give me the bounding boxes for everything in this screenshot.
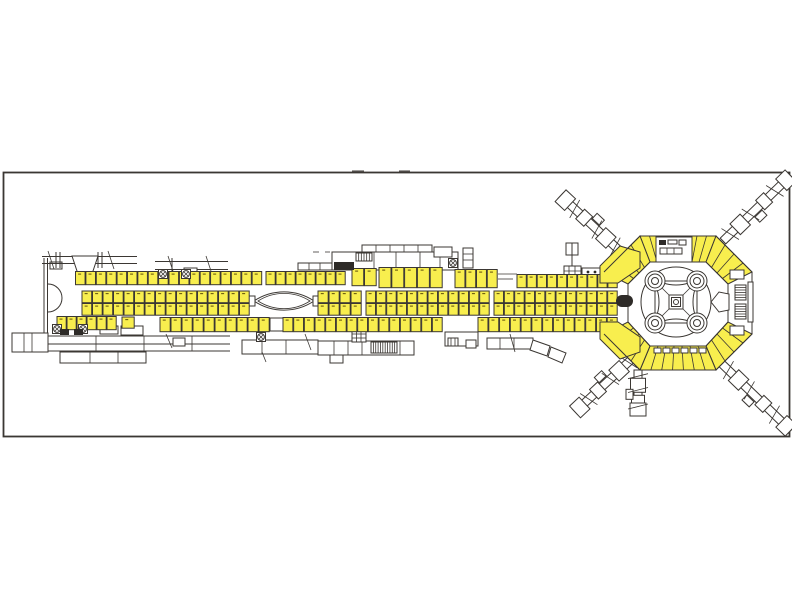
core-stair xyxy=(356,253,372,261)
mid-row-4-unit xyxy=(587,291,597,303)
mid-row-3-unit xyxy=(407,304,417,316)
mid-row-3-unit xyxy=(459,291,469,303)
bottom-row-1-unit xyxy=(97,317,106,330)
top-row-1-unit xyxy=(252,272,262,285)
mid-row-1-unit xyxy=(198,304,208,316)
top-row-1-unit xyxy=(96,272,106,285)
service-corridor-bottom-right xyxy=(445,332,566,363)
bottom-row-2-unit xyxy=(122,317,134,328)
top-row-6-unit xyxy=(557,275,566,288)
top-row-1-unit xyxy=(190,272,200,285)
top-row-2-unit xyxy=(266,272,275,285)
mid-row-2-unit xyxy=(329,291,339,303)
mid-row-3-unit xyxy=(449,291,459,303)
dark-block xyxy=(74,329,83,335)
top-row-1-unit xyxy=(169,272,179,285)
mid-row-1-unit xyxy=(187,304,197,316)
top-row-1-unit xyxy=(127,272,137,285)
mid-row-1-unit xyxy=(82,304,92,316)
mid-row-3-unit xyxy=(438,291,448,303)
core-service-complex xyxy=(298,245,458,270)
mid-row-1-unit xyxy=(114,291,124,303)
mid-row-4-unit xyxy=(546,291,556,303)
mid-row-2-unit xyxy=(318,291,328,303)
mid-row-3-unit xyxy=(376,291,386,303)
mid-row-4-unit xyxy=(535,291,545,303)
mid-row-4-unit xyxy=(525,291,535,303)
bottom-row-1-unit xyxy=(87,317,96,330)
mid-row-1-unit xyxy=(229,291,239,303)
mid-row-1-unit xyxy=(208,304,218,316)
mid-row-1-unit xyxy=(93,304,103,316)
mid-row-3-unit xyxy=(387,304,397,316)
hub-band-northeast xyxy=(706,236,752,284)
top-row-1-unit xyxy=(86,272,96,285)
mid-row-3-unit xyxy=(366,291,376,303)
mid-row-1-unit xyxy=(124,304,134,316)
mid-row-4-unit xyxy=(546,304,556,316)
crossed-circle-symbol xyxy=(449,259,458,268)
mid-row-4-unit xyxy=(608,304,618,316)
mid-row-3-unit xyxy=(397,304,407,316)
mid-row-1-unit xyxy=(103,291,113,303)
mid-row-1-unit xyxy=(177,291,187,303)
mid-row-2-unit xyxy=(340,304,350,316)
top-row-1-unit xyxy=(138,272,148,285)
top-row-6-unit xyxy=(588,275,597,288)
dark-block xyxy=(334,262,354,270)
hub-entry-shop-bottom xyxy=(600,322,640,359)
mid-row-4-unit xyxy=(577,304,587,316)
top-row-6-unit xyxy=(568,275,577,288)
mid-row-2-unit xyxy=(351,291,361,303)
mid-row-1-unit xyxy=(219,304,229,316)
top-row-1-unit xyxy=(211,272,221,285)
mid-row-1-unit xyxy=(82,291,92,303)
mid-row-4-unit xyxy=(597,304,607,316)
mid-row-3-unit xyxy=(428,304,438,316)
top-row-6-unit xyxy=(547,275,556,288)
mid-row-1-unit xyxy=(166,304,176,316)
mid-row-4-unit xyxy=(597,291,607,303)
mid-row-3-unit xyxy=(407,291,417,303)
mid-row-4-unit xyxy=(566,291,576,303)
hub-east-kiosk xyxy=(711,292,729,312)
mid-row-4-unit xyxy=(494,291,504,303)
hub-rotunda xyxy=(641,267,711,337)
top-row-1-unit xyxy=(221,272,231,285)
mid-row-3-unit xyxy=(438,304,448,316)
crossed-circle-symbol xyxy=(257,333,266,342)
mid-row-1-unit xyxy=(229,304,239,316)
mid-row-4-unit xyxy=(515,304,525,316)
mid-row-1-unit xyxy=(198,291,208,303)
mid-row-1-unit xyxy=(156,304,166,316)
mid-row-1-unit xyxy=(135,291,145,303)
mid-row-4-unit xyxy=(515,291,525,303)
mid-row-2-unit xyxy=(329,304,339,316)
mid-row-3-unit xyxy=(480,304,490,316)
mid-row-4-unit xyxy=(504,304,514,316)
floor-plan-page xyxy=(0,0,792,612)
mid-row-4-unit xyxy=(556,304,566,316)
mid-row-1-unit xyxy=(135,304,145,316)
jetway-hub-northeast xyxy=(716,169,792,250)
mid-row-3-unit xyxy=(397,291,407,303)
top-row-6-unit xyxy=(527,275,536,288)
mid-row-3-unit xyxy=(449,304,459,316)
top-row-6-unit xyxy=(578,275,587,288)
top-row-1-unit xyxy=(76,272,86,285)
jetway-hub-south-stub xyxy=(626,370,648,416)
hub-east-stair-upper xyxy=(735,285,746,300)
top-row-1-unit xyxy=(148,272,158,285)
bottom-row-1-unit xyxy=(67,317,76,330)
dark-block xyxy=(60,329,69,335)
top-row-1-unit xyxy=(231,272,241,285)
top-row-1-unit xyxy=(107,272,117,285)
jetway-hub-southeast xyxy=(713,356,792,439)
mid-row-1-unit xyxy=(114,304,124,316)
top-row-1-unit xyxy=(242,272,252,285)
mid-row-1-unit xyxy=(187,291,197,303)
mid-row-3-unit xyxy=(418,291,428,303)
mid-row-3-unit xyxy=(376,304,386,316)
hub-east-stair-lower xyxy=(735,304,746,319)
mid-row-1-unit xyxy=(177,304,187,316)
top-row-6-unit xyxy=(537,275,546,288)
mid-row-4-unit xyxy=(494,304,504,316)
mid-row-3-unit xyxy=(366,304,376,316)
row-gap-box xyxy=(270,318,283,331)
mid-row-1-unit xyxy=(219,291,229,303)
mid-row-4-unit xyxy=(556,291,566,303)
mid-row-1-unit xyxy=(166,291,176,303)
mid-row-2-unit xyxy=(318,304,328,316)
mid-row-1-unit xyxy=(145,291,155,303)
mid-row-4-unit xyxy=(577,291,587,303)
top-row-1-unit xyxy=(117,272,127,285)
top-row-2-unit xyxy=(306,272,315,285)
mid-row-4-unit xyxy=(608,291,618,303)
mid-row-1-unit xyxy=(103,304,113,316)
mid-row-1-unit xyxy=(93,291,103,303)
crossed-circle-symbol xyxy=(182,270,191,279)
floor-plan-canvas xyxy=(0,0,792,612)
kiosk-rows xyxy=(57,268,617,332)
crossed-circle-symbol xyxy=(159,270,168,279)
mid-row-4-unit xyxy=(535,304,545,316)
mid-row-3-unit xyxy=(469,291,479,303)
mid-row-1-unit xyxy=(145,304,155,316)
top-row-2-unit xyxy=(276,272,285,285)
mid-row-3-unit xyxy=(480,291,490,303)
mid-row-3-unit xyxy=(469,304,479,316)
mid-row-1-unit xyxy=(208,291,218,303)
mid-row-3-unit xyxy=(428,291,438,303)
moving-walkway-cap xyxy=(616,295,633,307)
top-row-2-unit xyxy=(286,272,295,285)
mid-row-4-unit xyxy=(504,291,514,303)
mid-row-4-unit xyxy=(566,304,576,316)
mid-row-1-unit xyxy=(124,291,134,303)
top-row-1-unit xyxy=(200,272,210,285)
top-row-2-unit xyxy=(336,272,345,285)
mid-row-1-unit xyxy=(240,291,250,303)
mid-row-2-unit xyxy=(340,291,350,303)
mid-row-1-unit xyxy=(156,291,166,303)
mid-row-3-unit xyxy=(459,304,469,316)
top-row-2-unit xyxy=(326,272,335,285)
mid-row-4-unit xyxy=(525,304,535,316)
mid-row-2-unit xyxy=(351,304,361,316)
top-row-6-unit xyxy=(517,275,526,288)
pier-service-stair xyxy=(371,342,397,353)
mid-row-4-unit xyxy=(587,304,597,316)
top-row-2-unit xyxy=(316,272,325,285)
bottom-row-1-unit xyxy=(107,317,116,330)
mid-row-1-unit xyxy=(240,304,250,316)
top-row-2-unit xyxy=(296,272,305,285)
mid-row-3-unit xyxy=(418,304,428,316)
mid-row-3-unit xyxy=(387,291,397,303)
